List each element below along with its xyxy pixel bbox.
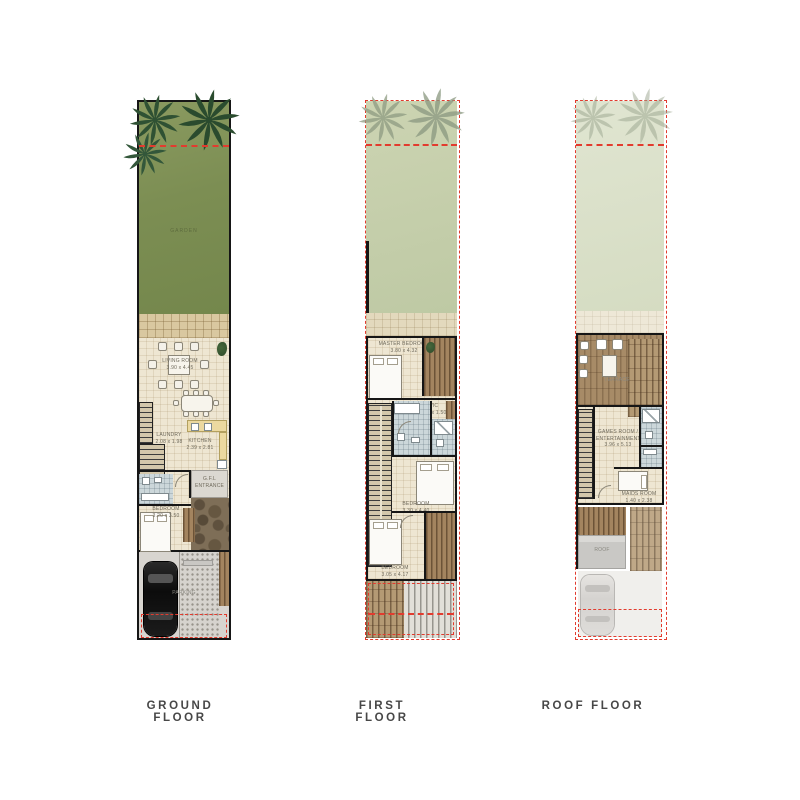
palm-tree-icon (175, 86, 243, 154)
side-deck (219, 552, 229, 606)
entrance-stone-path (191, 498, 229, 550)
roof-floor-plan: TERRACE GAMES ROOM /ENTERTAINMENT3.96 x … (575, 100, 667, 640)
patio-paving-faint (576, 311, 664, 333)
shower (642, 409, 660, 423)
balcony-deck (424, 513, 455, 579)
bedroom2-label: BEDROOM3.05 x 4.17 (374, 565, 416, 578)
first-floor-title: FIRST FLOOR (332, 700, 432, 724)
bathroom-2 (432, 419, 455, 455)
kitchen-counter (219, 432, 227, 460)
bathroom (139, 474, 173, 504)
plot-dashed-boundary (368, 583, 454, 635)
palm-tree-icon (568, 93, 618, 143)
shower (434, 421, 453, 435)
setback-dashed-line (139, 145, 229, 147)
palm-tree-icon (356, 91, 410, 145)
toilet (436, 439, 444, 447)
dining-table (181, 395, 213, 412)
kitchen-label: KITCHEN2.39 x 2.81 (181, 438, 219, 451)
garden-area-faded (366, 101, 457, 313)
roof-floor-title: ROOF FLOOR (538, 700, 648, 712)
parking-label: PARKING (161, 590, 207, 597)
wardrobe (183, 508, 195, 542)
bed (618, 471, 648, 491)
ground-floor-plan: GARDEN LIVING ROOM3.90 x 4.45 (137, 100, 231, 640)
living-room-label: LIVING ROOM3.90 x 4.45 (155, 358, 205, 371)
plot-dashed-boundary (578, 609, 662, 637)
fridge (217, 460, 227, 469)
toilet (397, 433, 405, 441)
bathroom (641, 407, 662, 469)
floor-plan-sheet: GARDEN LIVING ROOM3.90 x 4.45 (0, 0, 800, 800)
toilet (645, 431, 653, 439)
setback-dashed-line (576, 144, 664, 146)
bathtub (394, 403, 420, 414)
outdoor-table (602, 355, 617, 377)
patio-paving (139, 314, 229, 338)
stairs (578, 409, 593, 499)
pergola-deck (578, 507, 626, 535)
games-room-label: GAMES ROOM /ENTERTAINMENT3.96 x 5.13 (596, 429, 640, 449)
first-floor-plan: MASTER BEDROOM3.80 x 4.32 WIC2.10 x 1.50 (365, 100, 460, 640)
sink (643, 449, 657, 455)
bed (369, 519, 402, 565)
ground-floor-title: GROUND FLOOR (125, 700, 235, 724)
sink (154, 477, 162, 483)
garden-label: GARDEN (149, 228, 219, 235)
pergola-slats (630, 507, 662, 571)
bed (416, 461, 454, 505)
entrance-label: G.F.LENTRANCE (191, 476, 228, 489)
bathtub (141, 493, 169, 501)
palm-tree-icon (614, 85, 676, 147)
bedroom-label: BEDROOM3.20 x 3.50 (145, 506, 187, 519)
patio-paving-faded (366, 313, 457, 336)
garden-area: GARDEN (139, 102, 229, 314)
bed (369, 355, 402, 399)
setback-dashed-line (369, 613, 453, 615)
plot-dashed-boundary (141, 614, 227, 638)
toilet (142, 477, 150, 485)
kitchen-counter (187, 420, 227, 432)
palm-tree-icon (404, 85, 468, 149)
sink (411, 437, 420, 443)
terrace-label: TERRACE (600, 377, 634, 384)
maids-room-label: MAIDS ROOM1.40 x 2.38 (616, 491, 662, 504)
roof-label: ROOF (578, 547, 626, 554)
entry-step (183, 560, 213, 566)
garden-area-faint (576, 101, 664, 311)
palm-tree-icon (121, 130, 169, 178)
setback-dashed-line (366, 144, 457, 146)
dining-set (175, 390, 221, 417)
